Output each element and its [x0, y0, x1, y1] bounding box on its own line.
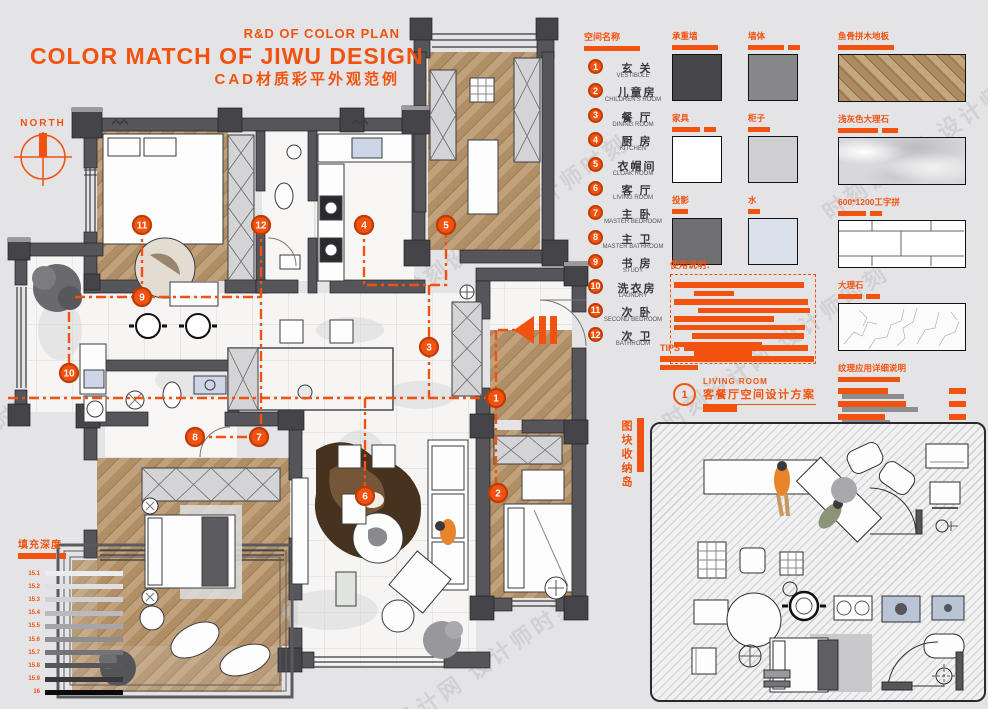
legend-item: 12次 卫BATHROOM — [584, 327, 662, 351]
legend-item: 10洗衣房LAUNDRY — [584, 279, 662, 303]
child-desk — [522, 470, 564, 500]
color-plan-poster: 时刻设计网 设计师时刻 时刻设计网 设计师时刻 时刻设计网 设计师时刻 时刻设计… — [0, 0, 988, 709]
room-name-en: LAUNDRY — [602, 293, 664, 299]
legend-item: 9书 房STUDY — [584, 254, 662, 278]
fill-depth-item: 15.6 — [18, 633, 128, 646]
legend-item: 2儿童房CHILDREN'S ROOM — [584, 83, 662, 107]
blanket — [202, 517, 228, 586]
room-name-en: MASTER BATHROOM — [602, 244, 664, 250]
fill-depth-item: 15.1 — [18, 567, 128, 580]
legend-title: 空间名称 — [584, 30, 662, 43]
legend-item: 5衣帽间CLOAK ROOM — [584, 157, 662, 181]
fill-depth-item: 16 — [18, 686, 128, 699]
fill-depth-item: 15.4 — [18, 607, 128, 620]
room-number-badge: 4 — [588, 132, 603, 147]
section-bar — [703, 404, 737, 412]
section-name-zh: 客餐厅空间设计方案 — [703, 386, 816, 405]
balcony-table — [140, 606, 164, 630]
loveseat-block — [926, 444, 968, 468]
armchair — [372, 445, 395, 468]
tile-diagram — [839, 221, 964, 266]
svg-text:6: 6 — [362, 492, 368, 503]
svg-text:5: 5 — [443, 221, 449, 232]
study-desk — [468, 140, 498, 214]
svg-text:2: 2 — [495, 489, 501, 500]
legend-item: 3餐 厅DINING ROOM — [584, 108, 662, 132]
texture-light-gray-marble: 浅灰色大理石 — [838, 113, 966, 185]
texture-tile-pattern: 600*1200工字拼 — [838, 196, 966, 268]
round-stool — [382, 600, 414, 632]
armchair — [338, 445, 361, 468]
legend-item: 8主 卫MASTER BATHROOM — [584, 230, 662, 254]
soundbar-block — [764, 670, 790, 678]
legend-item: 1玄 关VESTIBULE — [584, 59, 662, 83]
kitchen-sink — [352, 138, 382, 158]
section-name-en: LIVING ROOM — [703, 377, 768, 386]
fill-depth-legend: 填充深度 15.1 15.2 15.3 15.4 15.5 15.6 15.7 … — [18, 536, 128, 699]
page-title: COLOR MATCH OF JIWU DESIGN — [30, 42, 400, 71]
lamp-symbol-block — [739, 645, 761, 667]
fill-depth-item: 15.2 — [18, 580, 128, 593]
texture-column: 鱼骨拼木地板 浅灰色大理石 600*1200工字拼 — [838, 30, 966, 453]
block-library-items — [652, 424, 984, 700]
ball-block — [831, 477, 857, 503]
svg-text:8: 8 — [192, 433, 198, 444]
room-name-en: VESTIBULE — [602, 73, 664, 79]
room-name-en: STUDY — [602, 268, 664, 274]
room-number-badge: 10 — [588, 279, 603, 294]
fill-depth-item: 15.9 — [18, 673, 128, 686]
tips-label: TIPS — [660, 343, 680, 353]
room-name-en: DINING ROOM — [602, 122, 664, 128]
room-number-badge: 8 — [588, 230, 603, 245]
tv-cabinet — [292, 478, 308, 584]
soundbar-block — [764, 681, 790, 687]
svg-text:4: 4 — [361, 221, 367, 232]
room-name-en: KITCHEN — [602, 146, 664, 152]
north-compass: NORTH — [14, 118, 72, 186]
texture-marble: 大理石 — [838, 279, 966, 351]
poster-header: R&D OF COLOR PLAN COLOR MATCH OF JIWU DE… — [30, 26, 400, 90]
pot-block — [790, 592, 818, 620]
room-name-en: BATHROOM — [602, 341, 664, 347]
legend-item: 4厨 房KITCHEN — [584, 132, 662, 156]
room-number-badge: 11 — [588, 303, 603, 318]
fill-depth-item: 15.3 — [18, 593, 128, 606]
person-figure — [774, 461, 790, 516]
instructions-title: 使用说明： — [670, 258, 816, 271]
svg-text:12: 12 — [255, 221, 267, 232]
swatch-cabinet: 柜子 — [748, 112, 820, 183]
block-library-bar — [637, 418, 644, 472]
block-library-label: 图块收纳岛 — [620, 420, 634, 490]
section-number: 1 — [673, 383, 696, 406]
desk — [170, 282, 218, 306]
svg-text:3: 3 — [426, 343, 432, 354]
room-number-badge: 12 — [588, 327, 603, 342]
room-number-badge: 6 — [588, 181, 603, 196]
block-library-panel — [650, 422, 986, 702]
svg-text:10: 10 — [63, 369, 75, 380]
svg-text:7: 7 — [256, 433, 262, 444]
kitchen-counter-side — [318, 164, 344, 281]
door-arc-block — [870, 488, 922, 534]
fill-depth-item: 15.8 — [18, 659, 128, 672]
side-table-block — [694, 600, 728, 624]
room-number-badge: 3 — [588, 108, 603, 123]
room-name-en: LIVING ROOM — [602, 195, 664, 201]
texture-herringbone-wood: 鱼骨拼木地板 — [838, 30, 966, 102]
room-name-en: SECOND BEDROOM — [602, 317, 664, 323]
tv-block — [930, 482, 960, 504]
floor-vase — [336, 572, 356, 606]
header-subtitle-cn: CAD材质彩平外观范例 — [30, 71, 400, 90]
header-subtitle: R&D OF COLOR PLAN — [30, 26, 400, 42]
swatch-water: 水 — [748, 194, 820, 265]
stove-block — [834, 596, 872, 620]
svg-text:1: 1 — [493, 394, 499, 405]
svg-text:11: 11 — [137, 221, 148, 232]
legend-item: 7主 卧MASTER BEDROOM — [584, 205, 662, 229]
chair — [280, 320, 303, 343]
fill-depth-item: 15.5 — [18, 620, 128, 633]
north-label: NORTH — [20, 118, 66, 129]
room-number-badge: 1 — [588, 59, 603, 74]
swatch-column-1: 承重墙 家具 投影 — [672, 30, 744, 276]
armchair-block — [876, 458, 918, 497]
legend-title-underline — [584, 46, 640, 51]
grid-block — [780, 552, 803, 575]
swatch-column-2: 墙体 柜子 水 — [748, 30, 820, 276]
bed-blanket-block — [818, 640, 838, 690]
tips-section: TIPS — [660, 343, 816, 373]
room-number-badge: 2 — [588, 83, 603, 98]
room-number-badge: 5 — [588, 157, 603, 172]
svg-text:9: 9 — [139, 293, 145, 304]
door-leaf-block — [956, 652, 963, 690]
room-name-en: CLOAK ROOM — [602, 171, 664, 177]
room-number-badge: 7 — [588, 205, 603, 220]
valve-block — [936, 520, 948, 532]
toilet — [275, 183, 293, 209]
swatch-furniture: 家具 — [672, 112, 744, 183]
shower-head — [287, 145, 301, 159]
armchair-block — [845, 440, 886, 476]
bath-sink-master — [194, 376, 226, 394]
room-name-en: MASTER BEDROOM — [602, 219, 664, 225]
bath-sink — [280, 255, 300, 269]
room-legend: 空间名称 1玄 关VESTIBULE 2儿童房CHILDREN'S ROOM 3… — [584, 30, 662, 352]
crosshair-block — [932, 664, 956, 688]
toilet-master — [163, 382, 181, 408]
swatch-load-bearing-wall: 承重墙 — [672, 30, 744, 101]
fill-depth-title: 填充深度 — [18, 536, 128, 551]
marble-veins — [839, 304, 964, 349]
room-number-badge: 9 — [588, 254, 603, 269]
treadmill-base-block — [882, 682, 912, 690]
swatch-wall: 墙体 — [748, 30, 820, 101]
swatch-projection: 投影 — [672, 194, 744, 265]
small-pot-block — [783, 582, 797, 596]
legend-item: 6客 厅LIVING ROOM — [584, 181, 662, 205]
room-name-en: CHILDREN'S ROOM — [602, 97, 664, 103]
chair — [330, 320, 353, 343]
legend-item: 11次 卧SECOND BEDROOM — [584, 303, 662, 327]
fill-depth-item: 15.7 — [18, 646, 128, 659]
square-block — [740, 548, 765, 573]
